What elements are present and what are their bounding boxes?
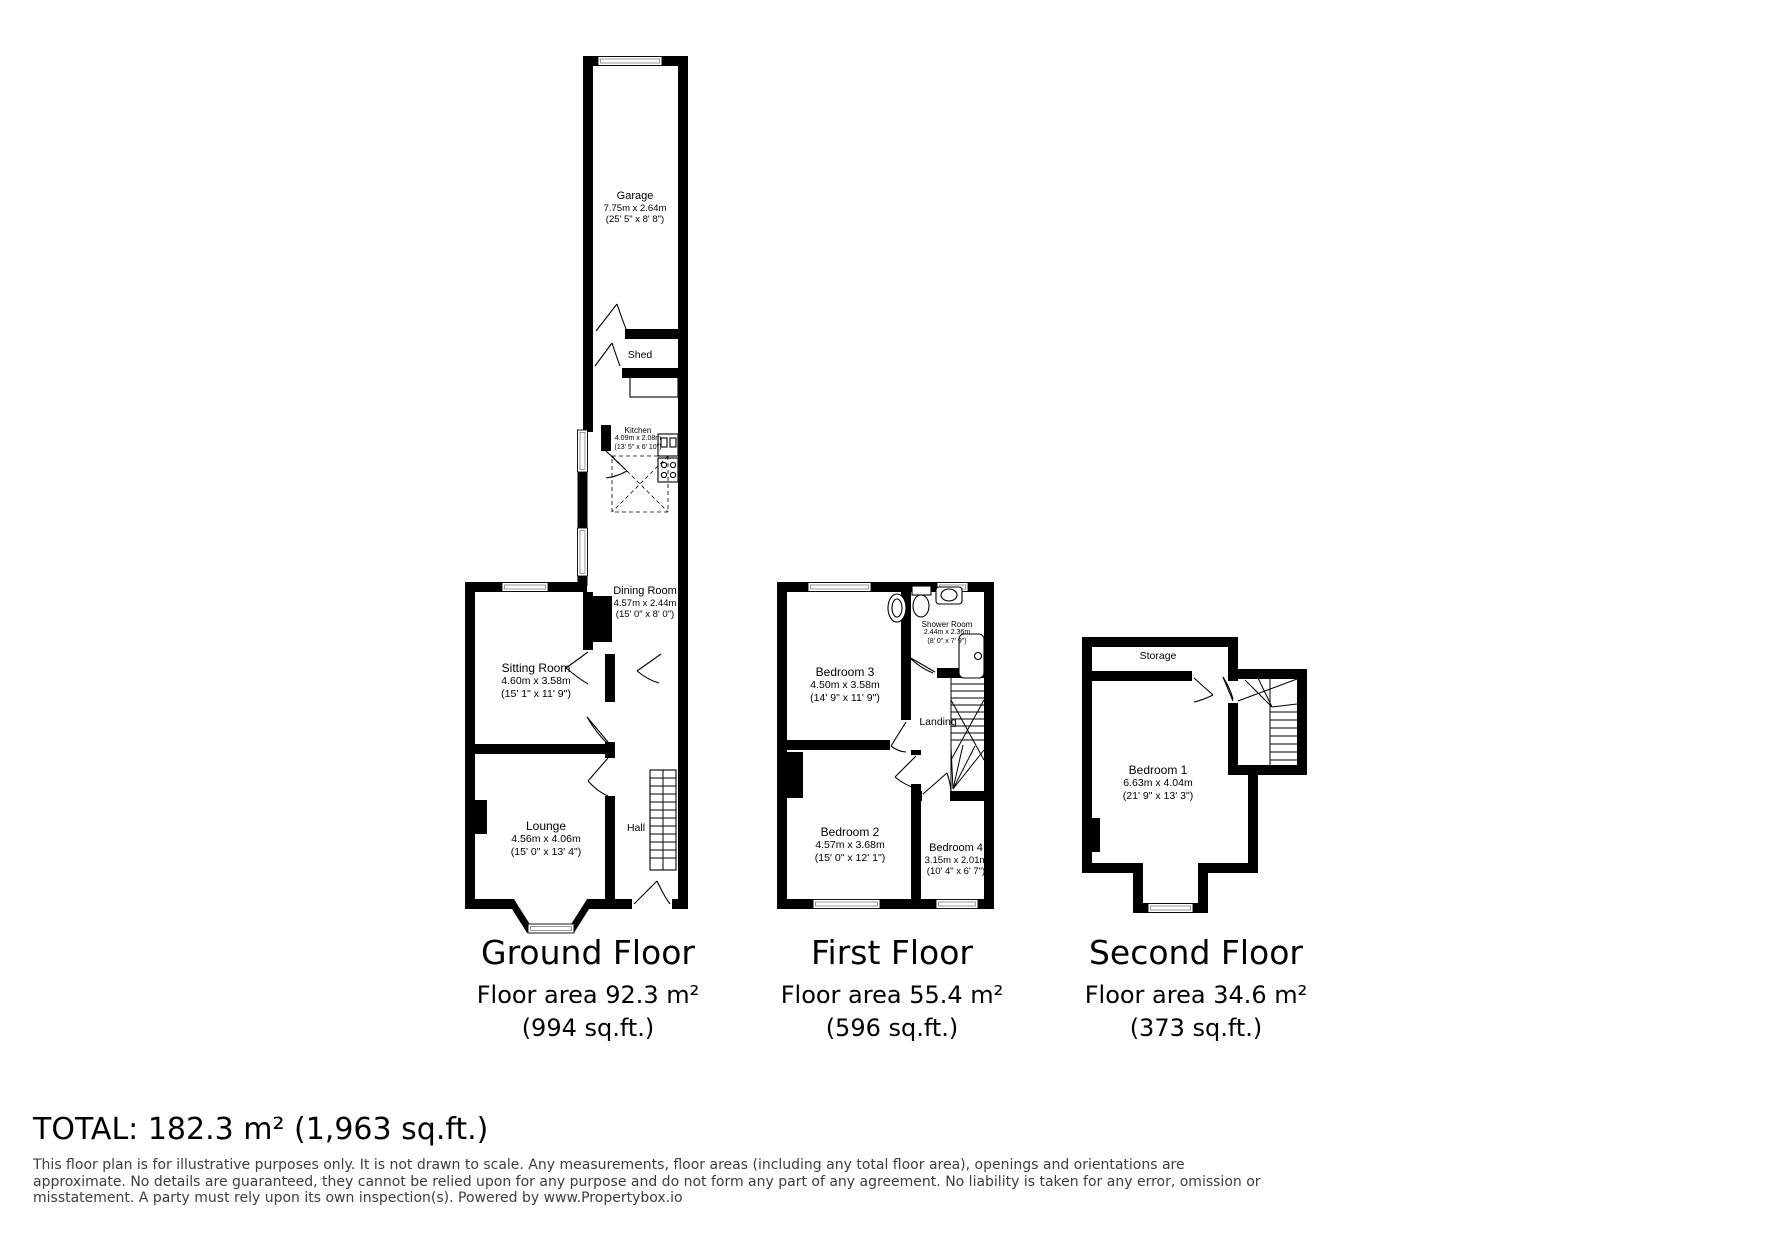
room-lounge-dim_ft: (15' 0" x 13' 4") — [511, 846, 581, 859]
second-floor-stairs — [1238, 678, 1297, 765]
room-garage-dim_ft: (25' 5" x 8' 8") — [604, 214, 667, 226]
room-kitchen-dim_ft: (13' 5" x 6' 10") — [615, 444, 662, 453]
window-bedroom-2 — [813, 900, 880, 909]
first-floor-area-m2: Floor area 55.4 m² — [781, 982, 1004, 1008]
room-bedroom-2-dim_m: 4.57m x 3.68m — [815, 839, 885, 852]
room-label-storage: Storage — [1140, 650, 1177, 662]
first-floor-area-ft2: (596 sq.ft.) — [781, 1015, 1004, 1041]
room-label-shower-room: Shower Room2.44m x 2.36m(8' 0" x 7' 9") — [922, 620, 973, 646]
room-bedroom-2-name: Bedroom 2 — [815, 825, 885, 839]
room-landing-name: Landing — [919, 716, 956, 728]
ground-floor-area-ft2: (994 sq.ft.) — [477, 1015, 700, 1041]
sink-icon — [936, 587, 962, 604]
kitchen-counter — [630, 375, 678, 397]
room-label-hall: Hall — [627, 822, 645, 834]
room-bedroom-1-dim_m: 6.63m x 4.04m — [1123, 777, 1193, 790]
room-lounge-name: Lounge — [511, 819, 581, 833]
first-floor-stairs — [951, 678, 984, 791]
room-dining-room-name: Dining Room — [613, 585, 677, 598]
second-floor-area-ft2: (373 sq.ft.) — [1085, 1015, 1308, 1041]
window-garage — [598, 57, 662, 66]
room-bedroom-3-dim_m: 4.50m x 3.58m — [810, 679, 880, 692]
room-dining-room-dim_ft: (15' 0" x 8' 0") — [613, 609, 677, 621]
room-bedroom-4-dim_m: 3.15m x 2.01m — [925, 855, 988, 867]
caption-first-floor: First Floor Floor area 55.4 m² (596 sq.f… — [781, 935, 1004, 1041]
disclaimer-text: This floor plan is for illustrative purp… — [33, 1157, 1261, 1207]
room-sitting-room-name: Sitting Room — [501, 661, 571, 675]
room-sitting-room-dim_ft: (15' 1" x 11' 9") — [501, 688, 571, 701]
floor-plan-drawing — [0, 0, 1771, 1239]
room-label-garage: Garage7.75m x 2.64m(25' 5" x 8' 8") — [604, 190, 667, 226]
room-dining-room-dim_m: 4.57m x 2.44m — [613, 598, 677, 610]
room-label-landing: Landing — [919, 716, 956, 728]
room-hall-name: Hall — [627, 822, 645, 834]
room-label-bedroom-2: Bedroom 24.57m x 3.68m(15' 0" x 12' 1") — [815, 825, 885, 864]
room-shower-room-dim_m: 2.44m x 2.36m — [922, 629, 973, 638]
window-bedroom-1 — [1148, 904, 1193, 913]
window-sitting-room — [502, 583, 548, 592]
disclaimer-line-3: misstatement. A party must rely upon its… — [33, 1190, 1261, 1207]
room-sitting-room-dim_m: 4.60m x 3.58m — [501, 675, 571, 688]
second-floor-plan — [1082, 637, 1307, 913]
room-bedroom-4-dim_ft: (10' 4" x 6' 7") — [925, 866, 988, 878]
room-label-bedroom-4: Bedroom 43.15m x 2.01m(10' 4" x 6' 7") — [925, 842, 988, 878]
room-kitchen-name: Kitchen — [615, 426, 662, 435]
room-label-bedroom-3: Bedroom 34.50m x 3.58m(14' 9" x 11' 9") — [810, 665, 880, 704]
ground-floor-stairs — [650, 770, 676, 870]
ground-floor-title: Ground Floor — [477, 935, 700, 971]
floorplan-page: Garage7.75m x 2.64m(25' 5" x 8' 8")ShedK… — [0, 0, 1771, 1239]
room-storage-name: Storage — [1140, 650, 1177, 662]
window-kitchen — [578, 430, 588, 472]
room-shower-room-name: Shower Room — [922, 620, 973, 629]
room-kitchen-dim_m: 4.09m x 2.08m — [615, 435, 662, 444]
room-label-shed: Shed — [628, 349, 653, 361]
room-label-kitchen: Kitchen4.09m x 2.08m(13' 5" x 6' 10") — [615, 426, 662, 452]
basin-icon — [888, 594, 906, 622]
room-label-sitting-room: Sitting Room4.60m x 3.58m(15' 1" x 11' 9… — [501, 661, 571, 700]
second-floor-area-m2: Floor area 34.6 m² — [1085, 982, 1308, 1008]
room-label-bedroom-1: Bedroom 16.63m x 4.04m(21' 9" x 13' 3") — [1123, 763, 1193, 802]
toilet-icon — [912, 586, 931, 617]
room-label-dining-room: Dining Room4.57m x 2.44m(15' 0" x 8' 0") — [613, 585, 677, 621]
total-floor-area: TOTAL: 182.3 m² (1,963 sq.ft.) — [33, 1112, 488, 1147]
ground-floor-area-m2: Floor area 92.3 m² — [477, 982, 700, 1008]
room-bedroom-1-name: Bedroom 1 — [1123, 763, 1193, 777]
ground-floor-plan — [465, 56, 688, 933]
disclaimer-line-1: This floor plan is for illustrative purp… — [33, 1157, 1261, 1174]
room-garage-name: Garage — [604, 190, 667, 203]
room-bedroom-4-name: Bedroom 4 — [925, 842, 988, 855]
room-garage-dim_m: 7.75m x 2.64m — [604, 203, 667, 215]
room-bedroom-1-dim_ft: (21' 9" x 13' 3") — [1123, 790, 1193, 803]
room-shed-name: Shed — [628, 349, 653, 361]
second-floor-title: Second Floor — [1085, 935, 1308, 971]
window-bedroom-4 — [936, 900, 978, 909]
second-floor-doors — [1194, 677, 1233, 702]
first-floor-title: First Floor — [781, 935, 1004, 971]
room-bedroom-3-dim_ft: (14' 9" x 11' 9") — [810, 692, 880, 705]
room-label-lounge: Lounge4.56m x 4.06m(15' 0" x 13' 4") — [511, 819, 581, 858]
window-bedroom-3 — [808, 583, 871, 592]
room-bedroom-2-dim_ft: (15' 0" x 12' 1") — [815, 852, 885, 865]
bay-window — [511, 901, 590, 933]
room-shower-room-dim_ft: (8' 0" x 7' 9") — [922, 638, 973, 647]
window-rear-hall — [578, 528, 588, 576]
room-bedroom-3-name: Bedroom 3 — [810, 665, 880, 679]
caption-second-floor: Second Floor Floor area 34.6 m² (373 sq.… — [1085, 935, 1308, 1041]
disclaimer-line-2: approximate. No details are guaranteed, … — [33, 1174, 1261, 1191]
room-lounge-dim_m: 4.56m x 4.06m — [511, 833, 581, 846]
caption-ground-floor: Ground Floor Floor area 92.3 m² (994 sq.… — [477, 935, 700, 1041]
